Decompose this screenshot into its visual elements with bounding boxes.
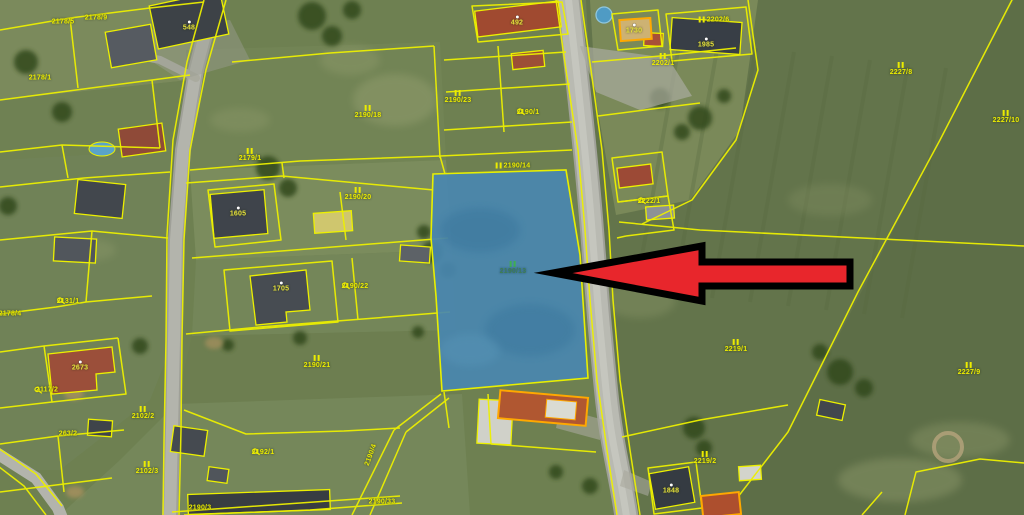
highlighted-parcel	[431, 170, 588, 391]
greenhouse	[313, 211, 352, 234]
aerial-base-svg	[0, 0, 1024, 515]
building-1605	[210, 190, 268, 239]
building-orange-bottom	[701, 492, 741, 515]
building-1848	[649, 467, 695, 509]
cadastral-map: 2178/52178/92178/15482179/14921730198522…	[0, 0, 1024, 515]
garden-circle	[934, 433, 962, 461]
building-1730	[619, 18, 651, 41]
pool	[596, 7, 612, 23]
